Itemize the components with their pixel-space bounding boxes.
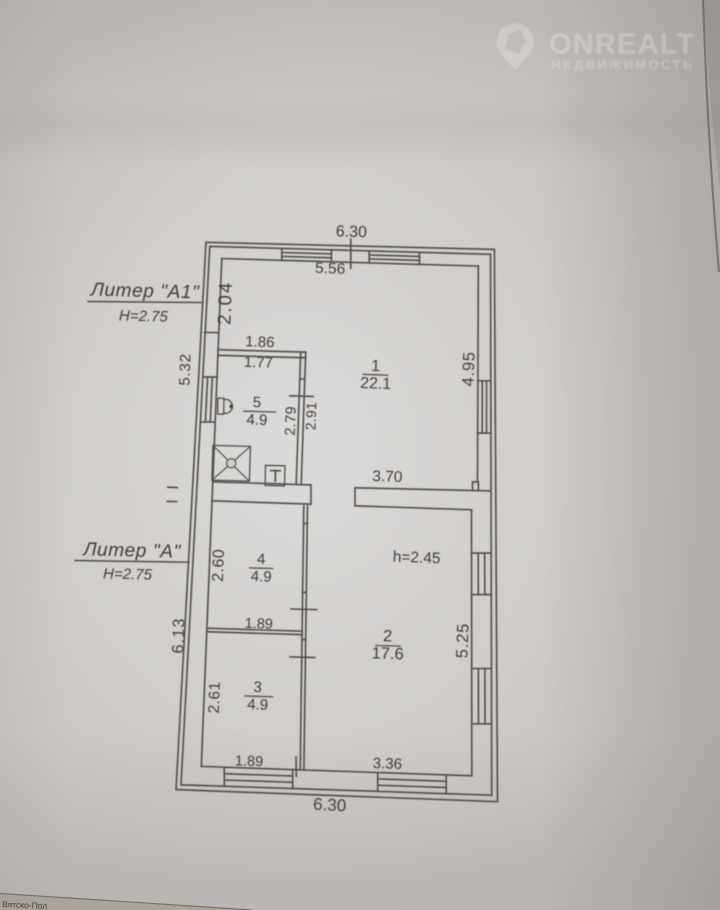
svg-text:4.9: 4.9 [247,696,268,714]
svg-text:2: 2 [383,627,393,645]
svg-text:4.95: 4.95 [459,351,478,387]
svg-text:4: 4 [257,551,266,568]
svg-text:3: 3 [253,679,262,696]
svg-text:5.25: 5.25 [453,623,472,659]
svg-text:2.04: 2.04 [213,280,236,325]
svg-text:H=2.75: H=2.75 [119,307,169,325]
svg-text:3.36: 3.36 [372,755,402,773]
svg-text:h=2.45: h=2.45 [392,549,440,568]
svg-text:2.91: 2.91 [302,402,319,431]
svg-text:3.70: 3.70 [372,468,403,486]
svg-text:17.6: 17.6 [371,644,404,663]
svg-text:1.77: 1.77 [244,354,274,372]
svg-text:Вятско-Пол: Вятско-Пол [2,899,48,910]
svg-text:НЕДВИЖИМОСТЬ: НЕДВИЖИМОСТЬ [551,57,695,72]
svg-text:5: 5 [252,394,261,411]
svg-text:6.30: 6.30 [313,795,347,816]
svg-text:2.60: 2.60 [210,548,228,582]
svg-text:22.1: 22.1 [360,375,392,393]
svg-text:4.9: 4.9 [250,568,271,586]
svg-text:H=2.75: H=2.75 [103,565,153,583]
svg-text:1: 1 [371,358,381,375]
svg-text:Литер "А1": Литер "А1" [89,280,201,304]
svg-text:4.9: 4.9 [246,411,267,429]
svg-text:5.56: 5.56 [315,260,346,278]
svg-text:6.30: 6.30 [335,223,367,241]
svg-text:6.13: 6.13 [169,617,188,654]
svg-text:1.86: 1.86 [245,333,275,351]
svg-text:1.89: 1.89 [244,616,273,633]
svg-text:5.32: 5.32 [176,353,194,386]
svg-text:2.61: 2.61 [206,681,224,714]
svg-text:2.79: 2.79 [283,406,300,436]
svg-text:ONREALT: ONREALT [549,29,695,61]
svg-text:1.89: 1.89 [235,753,264,770]
svg-text:Литер "А": Литер "А" [81,539,182,563]
